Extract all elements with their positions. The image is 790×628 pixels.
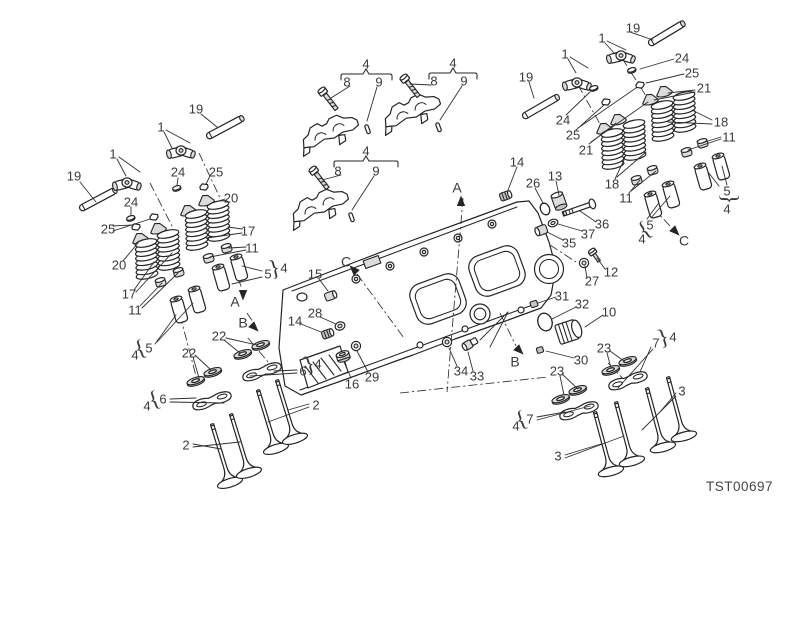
rocker-shaft [521,93,560,119]
part-label-1: 1 [561,47,568,62]
leader-line [288,404,309,410]
part-label-25: 25 [101,222,115,237]
section-label-b: B [238,315,247,331]
valve-seal-disc [251,339,271,352]
section-label-c: C [341,254,351,270]
half-ring [601,98,610,107]
spring-seat [681,147,693,158]
head-plug-boss [470,304,490,324]
washer-29 [351,341,360,350]
leader-line [558,224,582,231]
valve-guide [662,180,681,209]
part-label-4: 4 [362,57,369,72]
part-label-19: 19 [626,21,640,36]
section-label-c: C [679,233,689,249]
exhaust-valve [634,385,676,455]
part-label-22: 22 [212,329,226,344]
leader-line [580,211,596,222]
spring-seat [203,253,215,264]
part-label-11: 11 [619,191,633,206]
head-cam-bore [535,255,564,284]
part-label-25: 25 [685,66,699,81]
part-label-1: 1 [157,120,164,135]
cylinder-head-body [279,201,564,395]
part-label-24: 24 [171,165,185,180]
opening-rocker-arm [112,178,142,191]
part-label-8: 8 [430,74,437,89]
leader-line [640,347,651,372]
figure-code: TST00697 [706,479,773,494]
leader-line [195,355,212,371]
part-label-11: 11 [128,303,142,318]
rocker-cover [285,184,353,231]
part-label-26: 26 [526,176,540,191]
part-label-37: 37 [581,227,595,242]
opening-rocker-arm [606,51,636,64]
part-label-24: 24 [556,113,570,128]
closing-rocker-fork [241,361,283,383]
head-lug-hole [297,293,307,301]
leader-line [585,315,603,327]
leader-line [562,374,578,389]
leader-line [170,398,196,399]
part-label-31: 31 [555,289,569,304]
o-ring-26 [538,202,551,217]
leader-line [166,130,190,143]
leader-line [508,167,517,190]
part-label-30: 30 [574,353,588,368]
part-label-32: 32 [575,297,589,312]
spring-retainer [655,84,673,98]
valve-seal-disc [551,393,571,406]
part-label-10: 10 [602,305,616,320]
rocker-shaft [205,115,245,140]
leader-line [640,59,674,69]
part-label-19: 19 [519,70,533,85]
part-label-18: 18 [605,177,619,192]
leader-line [568,59,576,73]
leader-line [119,157,140,172]
part-label-15: 15 [308,267,322,282]
section-arrow-b-left [248,321,261,334]
washer-37 [547,218,559,228]
rocker-shaft [647,20,686,47]
part-label-11: 11 [722,130,736,145]
bushing-14 [499,190,513,202]
screw-12 [588,247,603,263]
cover-pin [435,122,441,132]
section-label-b: B [510,354,519,370]
plug-10 [555,318,584,345]
cylinder-head-exploded-diagram: 1911192425202425171120171154544894894891… [0,0,790,628]
part-label-8: 8 [343,75,350,90]
valve-seal-disc [186,375,206,388]
leader-line [410,84,431,85]
part-label-2: 2 [312,398,319,413]
sensor-33 [461,337,479,352]
leader-line [155,315,176,344]
part-label-21: 21 [697,81,711,96]
leader-line [367,87,377,121]
cover-bolt [317,86,340,112]
valve-guide [188,285,207,314]
leader-line [552,307,576,319]
leader-line [140,283,162,306]
leader-line [610,351,624,361]
cover-bolt [308,165,331,191]
part-label-16: 16 [345,377,359,392]
valve-guide [712,152,731,181]
valve-guide [694,162,713,191]
valve-guide [230,253,249,282]
shim [627,67,637,75]
part-label-2: 2 [182,438,189,453]
part-label-1: 1 [109,147,116,162]
part-label-19: 19 [67,169,81,184]
part-label-28: 28 [308,306,322,321]
leader-line [565,444,601,455]
leader-line [224,340,240,353]
part-label-3: 3 [678,384,685,399]
valve-guide [644,190,663,219]
part-label-1: 1 [598,31,605,46]
part-label-9: 9 [460,74,467,89]
shim [126,215,136,223]
intake-rocker-spring-cluster [78,115,248,324]
part-label-33: 33 [470,369,484,384]
shim [172,185,182,193]
opening-rocker-arm [562,78,592,91]
part-label-3: 3 [554,449,561,464]
part-label-29: 29 [365,370,379,385]
leader-line [646,74,684,83]
part-label-21: 21 [579,143,593,158]
group-brace: } [718,193,743,204]
leader-line [565,436,624,458]
nut-31 [530,300,539,308]
closing-rocker-fork [558,400,600,422]
part-label-36: 36 [595,217,609,232]
washer-27 [579,258,588,267]
valve-seal-disc [568,384,588,397]
part-label-13: 13 [548,169,562,184]
leader-line [201,114,217,127]
section-arrow-a-down [239,290,247,301]
section-arrow-a-up [457,196,465,207]
part-label-18: 18 [714,115,728,130]
leader-line [547,232,563,240]
rocker-cover-assemblies [285,68,477,230]
part-label-27: 27 [585,274,599,289]
part-label-14: 14 [288,314,302,329]
part-label-34: 34 [454,364,468,379]
part-label-17: 17 [241,224,255,239]
part-label-23: 23 [550,364,564,379]
part-label-25: 25 [209,165,223,180]
part-label-9: 9 [372,164,379,179]
part-label-23: 23 [597,341,611,356]
valve-seal-disc [203,366,223,379]
part-label-24: 24 [675,51,689,66]
leader-line [80,182,96,202]
part-label-9: 9 [375,75,382,90]
leader-line [605,43,615,54]
exhaust-valve-group [551,355,698,479]
opening-rocker-arm [166,146,196,159]
parts-diagram-page: 1911192425202425171120171154544894894891… [0,0,790,628]
rocker-shaft [78,187,118,212]
exhaust-valve [655,374,697,444]
valve-guide [212,263,231,292]
half-ring [635,81,644,90]
part-label-25: 25 [566,128,580,143]
leader-line [352,176,374,210]
closing-rocker-fork [191,390,233,412]
section-label-a: A [452,180,462,196]
valve-seal-disc [618,355,638,368]
leader-line [560,376,564,395]
nut-30 [536,346,544,353]
part-label-12: 12 [604,265,618,280]
leader-line [440,86,462,120]
cover-pin [364,124,370,134]
leader-line [164,132,172,148]
stud-36 [561,198,596,219]
part-label-35: 35 [562,236,576,251]
cover-bolt [399,73,422,99]
part-label-8: 8 [334,164,341,179]
section-label-a: A [230,294,240,310]
part-label-4: 4 [449,56,456,71]
rocker-cover [377,89,445,136]
leader-line [546,351,574,358]
part-label-4: 4 [362,144,369,159]
cover-pin [348,212,354,222]
washer-34 [442,337,451,346]
half-ring [149,213,158,222]
half-ring [199,183,208,192]
part-label-11: 11 [245,241,259,256]
part-label-22: 22 [182,346,196,361]
part-label-20: 20 [224,191,238,206]
part-label-20: 20 [112,258,126,273]
part-label-17: 17 [122,287,136,302]
o-ring-32 [536,311,555,332]
part-label-24: 24 [124,195,138,210]
rocker-cover [295,110,363,157]
part-label-4: 4 [280,261,287,276]
leader-line [226,338,257,345]
part-label-19: 19 [189,102,203,117]
part-label-14: 14 [510,155,524,170]
